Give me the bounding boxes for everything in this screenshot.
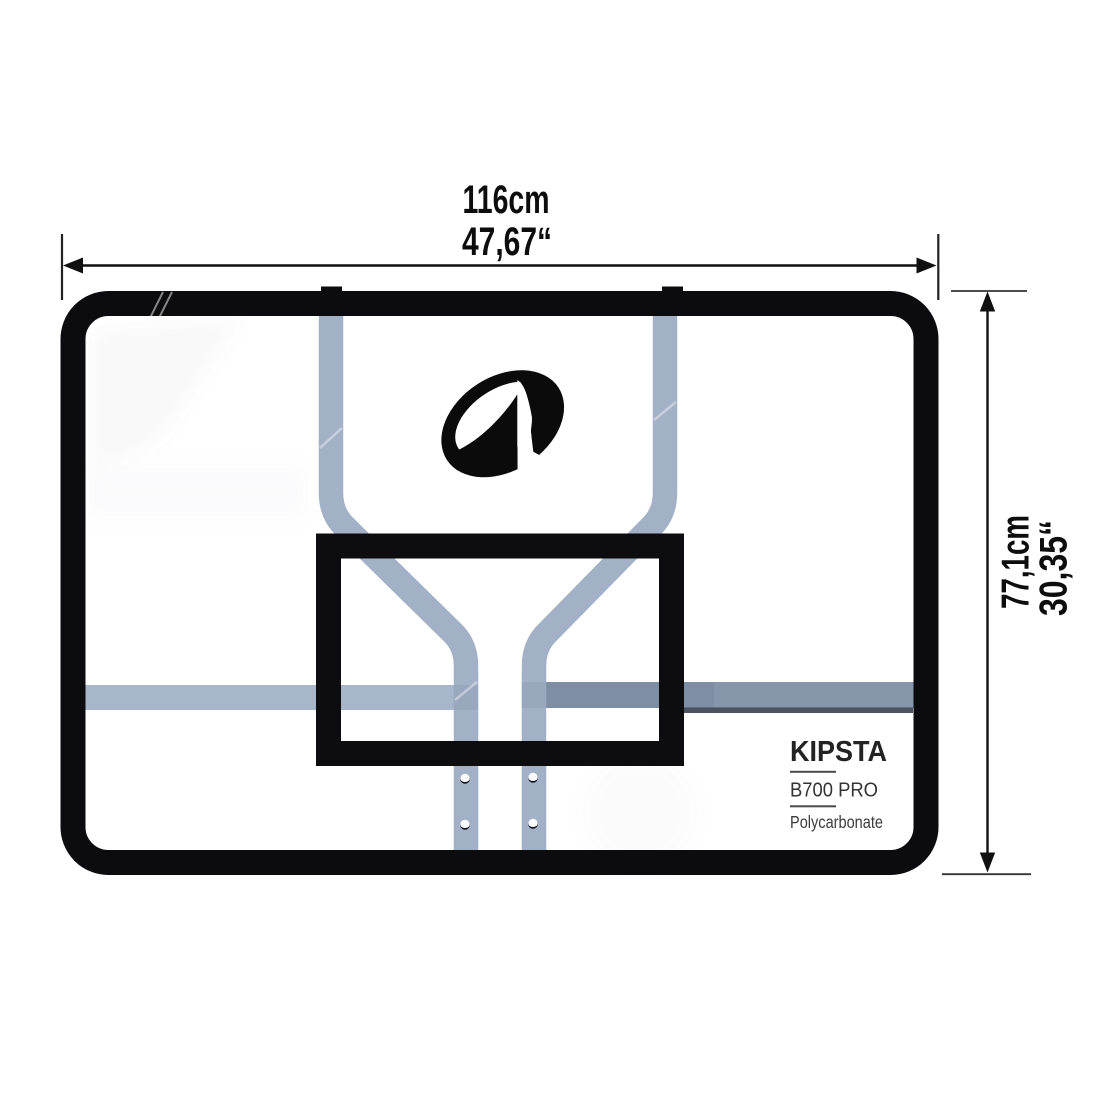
svg-text:116cm: 116cm: [463, 178, 550, 222]
svg-text:77,1cm: 77,1cm: [995, 515, 1038, 609]
svg-text:KIPSTA: KIPSTA: [790, 736, 887, 768]
svg-text:B700 PRO: B700 PRO: [790, 780, 878, 802]
svg-text:47,67“: 47,67“: [462, 220, 552, 264]
svg-text:Polycarbonate: Polycarbonate: [790, 812, 883, 832]
svg-text:30,35“: 30,35“: [1033, 520, 1076, 616]
